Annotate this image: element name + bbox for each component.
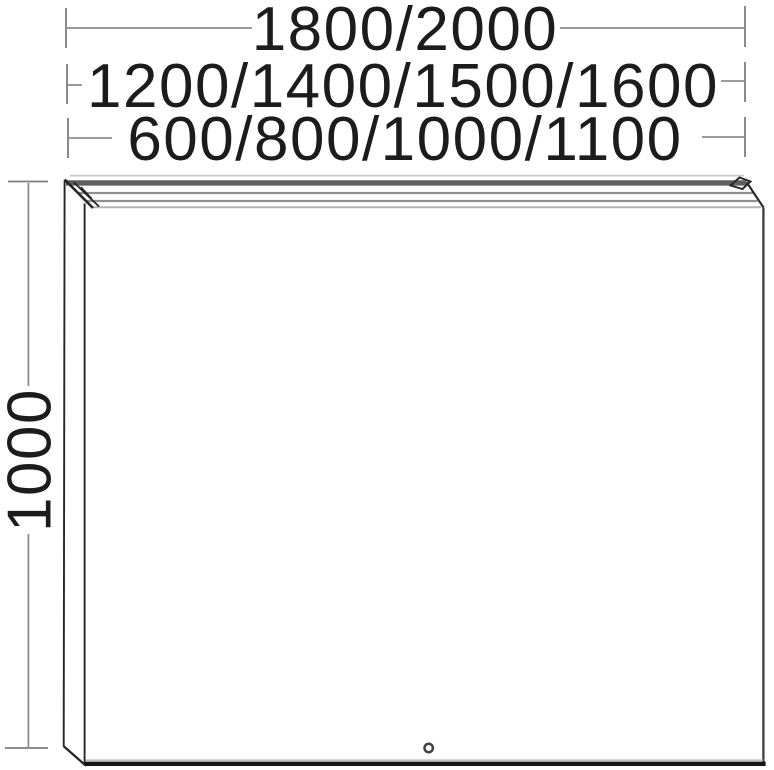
diagram-svg: 1800/2000 1200/1400/1500/1600 600/800/10… [0, 0, 774, 770]
mirror-body [64, 176, 766, 766]
dim-label-width-bottom: 600/800/1000/1100 [127, 105, 682, 174]
touch-switch-dot-icon [425, 744, 433, 752]
canopy-right-corner-bevel [747, 182, 764, 208]
dim-label-height: 1000 [0, 388, 65, 532]
mirror-front-face [64, 181, 766, 766]
mirror-left-outer-edge [64, 181, 65, 747]
light-canopy [65, 176, 764, 208]
dim-width-bottom: 600/800/1000/1100 [68, 105, 745, 174]
mirror-dimension-diagram: 1800/2000 1200/1400/1500/1600 600/800/10… [0, 0, 774, 770]
dim-height-left: 1000 [0, 182, 65, 749]
mirror-bottom-left-bevel [64, 746, 86, 766]
